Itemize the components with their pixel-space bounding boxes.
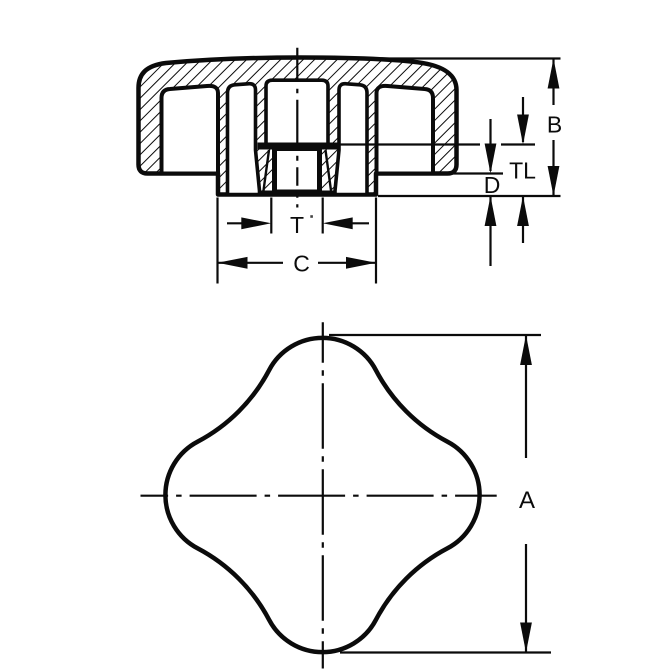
svg-text:D: D — [484, 172, 501, 198]
svg-text:TL: TL — [509, 158, 536, 184]
svg-text:A: A — [519, 487, 535, 514]
svg-text:B: B — [547, 112, 562, 138]
svg-text:C: C — [293, 250, 310, 276]
svg-text:T: T — [290, 212, 304, 238]
